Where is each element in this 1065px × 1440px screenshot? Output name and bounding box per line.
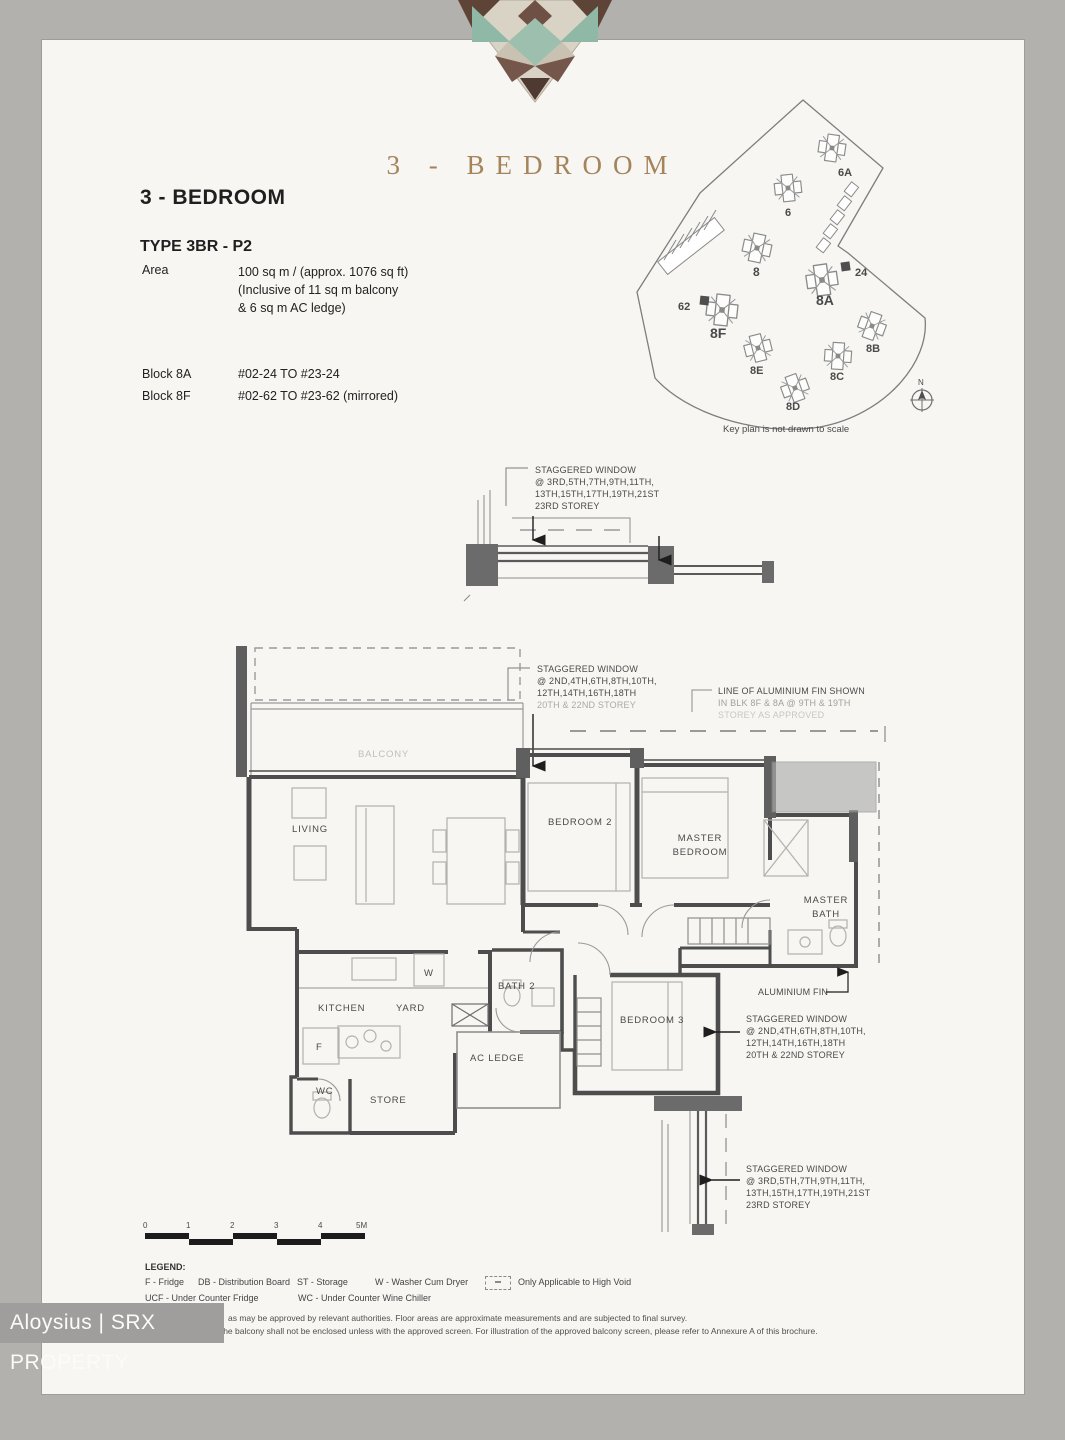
svg-text:3: 3 — [274, 1221, 279, 1230]
key-plan-label-8b: 8B — [866, 343, 880, 355]
room-label-ac-ledge: AC LEDGE — [470, 1053, 524, 1064]
svg-text:@ 3RD,5TH,7TH,9TH,11TH,: @ 3RD,5TH,7TH,9TH,11TH, — [535, 477, 654, 487]
svg-text:STAGGERED WINDOW: STAGGERED WINDOW — [537, 664, 638, 674]
svg-text:@ 2ND,4TH,6TH,8TH,10TH,: @ 2ND,4TH,6TH,8TH,10TH, — [537, 676, 657, 686]
key-plan-label-6a: 6A — [838, 167, 852, 179]
svg-text:STAGGERED WINDOW: STAGGERED WINDOW — [746, 1164, 847, 1174]
svg-text:IN BLK 8F & 8A @ 9TH & 19TH: IN BLK 8F & 8A @ 9TH & 19TH — [718, 698, 851, 708]
svg-text:STOREY AS APPROVED: STOREY AS APPROVED — [718, 710, 825, 720]
key-plan-block-8-icon — [740, 231, 773, 264]
watermark-text: Aloysius | SRX PROPERTY — [0, 1303, 224, 1383]
key-plan-block-6-icon — [773, 173, 802, 202]
svg-text:STAGGERED WINDOW: STAGGERED WINDOW — [535, 465, 636, 475]
watermark-badge: Aloysius | SRX PROPERTY — [0, 1303, 224, 1343]
window-detail-bottom — [654, 1096, 742, 1235]
svg-text:12TH,14TH,16TH,18TH: 12TH,14TH,16TH,18TH — [537, 688, 636, 698]
north-compass-icon: N — [910, 378, 934, 412]
key-plan-label-8: 8 — [753, 265, 760, 279]
room-label-bedroom3: BEDROOM 3 — [620, 1015, 684, 1026]
high-void-outline — [255, 648, 520, 700]
svg-text:N: N — [918, 378, 924, 387]
svg-text:STAGGERED WINDOW: STAGGERED WINDOW — [746, 1014, 847, 1024]
key-plan-label-8f: 8F — [710, 325, 727, 341]
staggered-right-annotation: STAGGERED WINDOW @ 2ND,4TH,6TH,8TH,10TH,… — [716, 1014, 866, 1060]
svg-text:LINE OF ALUMINIUM FIN SHOWN: LINE OF ALUMINIUM FIN SHOWN — [718, 686, 865, 696]
key-plan-caption: Key plan is not drawn to scale — [723, 424, 849, 435]
room-label-bedroom2: BEDROOM 2 — [548, 817, 612, 828]
key-plan-strip-left — [658, 210, 725, 274]
svg-text:12TH,14TH,16TH,18TH: 12TH,14TH,16TH,18TH — [746, 1038, 845, 1048]
line-art: 6A 6 8 8A 24 62 8F 8B 8E 8C 8D N Key pla… — [0, 0, 1065, 1440]
window-detail-top: STAGGERED WINDOW @ 3RD,5TH,7TH,9TH,11TH,… — [464, 465, 774, 601]
svg-text:13TH,15TH,17TH,19TH,21ST: 13TH,15TH,17TH,19TH,21ST — [746, 1188, 871, 1198]
room-label-balcony: BALCONY — [358, 749, 409, 760]
key-plan-strip-right — [816, 182, 858, 253]
key-plan-block-6a-icon — [817, 133, 847, 163]
key-plan-label-62: 62 — [678, 301, 690, 313]
key-plan-label-8d: 8D — [786, 401, 800, 413]
ac-ledge-outline — [457, 1032, 560, 1108]
room-label-mbath-1: MASTER — [804, 895, 848, 906]
room-label-mbath-2: BATH — [812, 909, 840, 920]
staggered-bottom-annotation: STAGGERED WINDOW @ 3RD,5TH,7TH,9TH,11TH,… — [746, 1164, 871, 1210]
key-plan-block-8f-icon — [705, 293, 739, 327]
key-plan-block-8d-icon — [778, 371, 812, 405]
room-label-bath2: BATH 2 — [498, 981, 535, 992]
room-label-kitchen: KITCHEN — [318, 1003, 365, 1014]
key-plan-block-8b-icon — [855, 309, 889, 343]
svg-text:0: 0 — [143, 1221, 148, 1230]
key-plan-label-6: 6 — [785, 207, 791, 219]
room-label-wc: WC — [316, 1086, 333, 1097]
svg-text:@ 3RD,5TH,7TH,9TH,11TH,: @ 3RD,5TH,7TH,9TH,11TH, — [746, 1176, 865, 1186]
brochure-canvas: 3 - BEDROOM 3 - BEDROOM TYPE 3BR - P2 Ar… — [0, 0, 1065, 1440]
room-label-living: LIVING — [292, 824, 328, 835]
svg-text:20TH & 22ND STOREY: 20TH & 22ND STOREY — [537, 700, 636, 710]
svg-text:1: 1 — [186, 1221, 191, 1230]
unit-62-marker — [699, 296, 709, 306]
room-label-yard: YARD — [396, 1003, 425, 1014]
key-plan-label-8a: 8A — [816, 292, 834, 308]
key-plan-label-24: 24 — [855, 267, 868, 279]
svg-text:13TH,15TH,17TH,19TH,21ST: 13TH,15TH,17TH,19TH,21ST — [535, 489, 660, 499]
room-label-store: STORE — [370, 1095, 407, 1106]
svg-text:2: 2 — [230, 1221, 235, 1230]
svg-text:4: 4 — [318, 1221, 323, 1230]
ac-ledge-top-right — [772, 762, 876, 812]
appliance-label-fridge: F — [316, 1042, 323, 1053]
key-plan-block-8e-icon — [742, 332, 774, 364]
developer-logo-icon — [458, 0, 612, 102]
scale-bar: 0 1 2 3 4 5M — [143, 1221, 367, 1245]
key-plan-block-8c-icon — [824, 342, 852, 370]
svg-text:23RD STOREY: 23RD STOREY — [746, 1200, 811, 1210]
balcony — [251, 703, 523, 775]
room-label-master-1: MASTER — [678, 833, 722, 844]
room-label-master-2: BEDROOM — [673, 847, 728, 858]
aluminium-fin-label: ALUMINIUM FIN — [758, 987, 828, 997]
unit-24-marker — [840, 261, 850, 271]
svg-text:20TH & 22ND STOREY: 20TH & 22ND STOREY — [746, 1050, 845, 1060]
key-plan-label-8e: 8E — [750, 365, 763, 377]
key-plan: 6A 6 8 8A 24 62 8F 8B 8E 8C 8D N Key pla… — [637, 100, 934, 435]
door-swings — [318, 900, 770, 1101]
svg-text:5M: 5M — [356, 1221, 367, 1230]
svg-text:@ 2ND,4TH,6TH,8TH,10TH,: @ 2ND,4TH,6TH,8TH,10TH, — [746, 1026, 866, 1036]
svg-text:23RD STOREY: 23RD STOREY — [535, 501, 600, 511]
appliance-label-washer: W — [424, 968, 434, 979]
key-plan-label-8c: 8C — [830, 371, 844, 383]
